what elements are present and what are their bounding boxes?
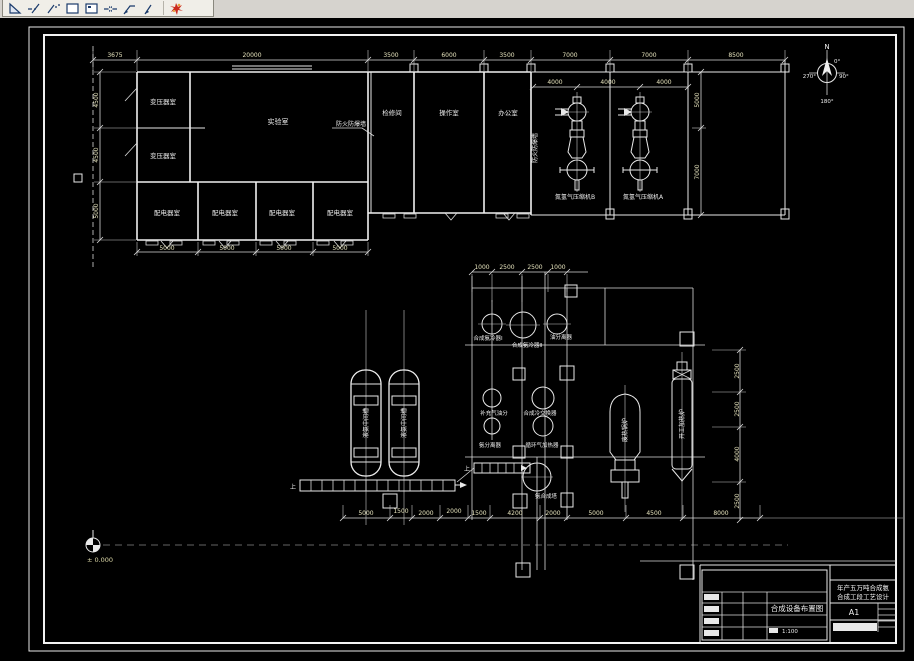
dim-room-1: 5000 xyxy=(159,245,174,252)
dim-left-1: 4500 xyxy=(93,92,100,107)
title-block: 合成设备布置图 1:100 年产五万吨合成氨 合成工段工艺设计 A1 xyxy=(640,561,896,643)
titleblock-scale-label-cell xyxy=(769,628,778,633)
compressor-a-label: 氮氢气压缩机A xyxy=(623,193,664,201)
explode-icon[interactable] xyxy=(167,0,186,16)
dim-eqr-4: 2500 xyxy=(734,493,741,508)
cooler1-label: 合成氨冷器Ⅰ xyxy=(473,334,503,342)
waste-heat-boiler: 废热锅炉 xyxy=(610,385,640,512)
cad-application-window: 变压器室 变压器室 实验室 检修间 操作室 办公室 配电器室 配电器室 配电器室… xyxy=(0,0,914,661)
dim-top-8: 8500 xyxy=(728,52,743,59)
dim-eqbot-6: 4200 xyxy=(507,510,522,517)
compass-270: 270° xyxy=(803,74,816,80)
ray-line-icon[interactable] xyxy=(25,0,44,16)
titleblock-selected-cell-2 xyxy=(704,606,719,612)
dim-top-1: 3675 xyxy=(107,52,122,59)
ammonia-separator-label: 氨分离器 xyxy=(479,441,502,449)
dim-eqtop-4: 1000 xyxy=(550,264,565,271)
sheet-size: A1 xyxy=(849,608,860,617)
room-label-transformer1: 变压器室 xyxy=(150,97,177,106)
room-label-maintenance: 检修间 xyxy=(382,108,402,117)
drawing-canvas[interactable]: 变压器室 变压器室 实验室 检修间 操作室 办公室 配电器室 配电器室 配电器室… xyxy=(0,18,914,661)
stair1-up-label: 上 xyxy=(290,483,296,491)
dim-bayr-2: 7000 xyxy=(694,164,701,179)
startup-heater-label: 开工加热炉 xyxy=(678,409,686,439)
scale-value: 1:100 xyxy=(782,629,798,635)
firewall-wall-label: 防火防爆墙 xyxy=(531,133,539,163)
dim-eqbot-3: 2000 xyxy=(418,510,433,517)
firewall-note: 防火防爆墙 xyxy=(336,120,366,128)
synth-tower-label: 氨合成塔 xyxy=(535,492,558,500)
waste-boiler-label: 废热锅炉 xyxy=(621,418,629,442)
dim-top-2: 20000 xyxy=(242,52,261,59)
quick-leader-icon[interactable] xyxy=(139,0,158,16)
dim-top-3: 3500 xyxy=(383,52,398,59)
room-label-office: 办公室 xyxy=(498,108,518,117)
room-label-dist2: 配电器室 xyxy=(212,208,239,217)
dim-eqtop-3: 2500 xyxy=(527,264,542,271)
compressor-b-drawing xyxy=(555,92,594,192)
cad-drawing: 变压器室 变压器室 实验室 检修间 操作室 办公室 配电器室 配电器室 配电器室… xyxy=(0,18,914,661)
region-icon[interactable] xyxy=(82,0,101,16)
dim-eqtop-2: 2500 xyxy=(499,264,514,271)
dim-eqbot-9: 4500 xyxy=(646,510,661,517)
tank2-label: 液氨中间槽 xyxy=(400,408,408,438)
ammonia-tank-2: 液氨中间槽 xyxy=(389,310,419,525)
titleblock-selected-cell-3 xyxy=(704,618,719,624)
dim-left-3: 5000 xyxy=(93,203,100,218)
makeup-separator-label: 补充气油分 xyxy=(480,409,508,417)
dim-eqr-3: 4000 xyxy=(734,446,741,461)
stair-1: 上 xyxy=(290,480,467,491)
compass-90: 90° xyxy=(839,74,849,80)
dim-room-2: 5000 xyxy=(219,245,234,252)
datum-elevation-text: ± 0.000 xyxy=(87,556,113,564)
dim-eqr-1: 2500 xyxy=(734,363,741,378)
equipment-grid xyxy=(465,272,705,580)
dim-eqr-2: 2500 xyxy=(734,401,741,416)
break-dimension-icon[interactable] xyxy=(101,0,120,16)
datum-marker: ± 0.000 xyxy=(86,530,788,564)
startup-heater-column: 开工加热炉 xyxy=(672,352,692,520)
project-title-line1: 年产五万吨合成氨 xyxy=(837,583,890,592)
dim-eqbot-2: 1500 xyxy=(393,508,408,515)
cooler2-label: 合成氨冷器Ⅱ xyxy=(512,341,543,349)
dim-bay-2: 4000 xyxy=(600,79,615,86)
cad-toolbar xyxy=(0,0,914,19)
equipment-layout: 液氨中间槽 液氨中间槽 合成氨冷器Ⅰ 合成氨冷器Ⅱ 油分离器 xyxy=(290,272,705,580)
construction-line-icon[interactable] xyxy=(44,0,63,16)
grip-point[interactable] xyxy=(74,174,82,182)
dim-bay-1: 4000 xyxy=(547,79,562,86)
ammonia-tank-1: 液氨中间槽 xyxy=(351,310,381,525)
sheet-border xyxy=(29,27,904,651)
project-title-line2: 合成工段工艺设计 xyxy=(837,592,890,601)
room-label-dist3: 配电器室 xyxy=(269,208,296,217)
titleblock-selected-cell-1 xyxy=(704,594,719,600)
drawing-name: 合成设备布置图 xyxy=(771,603,824,613)
room-label-dist1: 配电器室 xyxy=(154,208,181,217)
dim-eqbot-8: 5000 xyxy=(588,510,603,517)
compressor-b-label: 氮氢气压缩机B xyxy=(555,193,595,201)
dim-top-5: 3500 xyxy=(499,52,514,59)
tank1-label: 液氨中间槽 xyxy=(362,408,370,438)
stair-2: 上 xyxy=(457,463,530,482)
dim-eqbot-7: 2000 xyxy=(545,510,560,517)
dim-room-4: 5000 xyxy=(332,245,347,252)
plan-dimensions: 3675 20000 3500 6000 3500 7000 7000 8500… xyxy=(90,50,788,256)
room-label-operation: 操作室 xyxy=(439,108,459,117)
rectangle-icon[interactable] xyxy=(63,0,82,16)
triangle-ruler-icon[interactable] xyxy=(6,0,25,16)
floor-plan: 变压器室 变压器室 实验室 检修间 操作室 办公室 配电器室 配电器室 配电器室… xyxy=(93,46,789,270)
dim-bayr-1: 5000 xyxy=(694,92,701,107)
oil-separator-label: 油分离器 xyxy=(550,333,573,341)
dim-top-4: 6000 xyxy=(441,52,456,59)
leader-icon[interactable] xyxy=(120,0,139,16)
cold-exchanger-label: 合成冷交换器 xyxy=(523,409,557,417)
room-label-transformer2: 变压器室 xyxy=(150,151,177,160)
dim-eqbot-5: 1500 xyxy=(471,510,486,517)
titleblock-selected-cell-4 xyxy=(704,630,719,636)
dim-eqbot-1: 5000 xyxy=(358,510,373,517)
dim-top-6: 7000 xyxy=(562,52,577,59)
dim-bay-3: 4000 xyxy=(656,79,671,86)
dim-left-2: 4500 xyxy=(93,147,100,162)
room-label-dist4: 配电器室 xyxy=(327,208,354,217)
footing-squares xyxy=(383,285,694,579)
dimension-toolbar xyxy=(2,0,214,17)
dim-eqbot-4: 2000 xyxy=(446,508,461,515)
recirc-heater-label: 循环气加热器 xyxy=(525,441,559,449)
compressor-bay: 氮氢气压缩机B 氮氢气压缩机A xyxy=(555,92,664,201)
dim-room-3: 5000 xyxy=(276,245,291,252)
dim-eqtop-1: 1000 xyxy=(474,264,489,271)
compass-n: N xyxy=(824,43,829,51)
dim-top-7: 7000 xyxy=(641,52,656,59)
north-compass: N 0° 270° 90° 180° xyxy=(803,43,849,105)
compressor-a-drawing xyxy=(618,92,657,192)
compass-180: 180° xyxy=(820,99,833,105)
stair2-up-label: 上 xyxy=(464,465,470,473)
compass-0: 0° xyxy=(834,59,840,65)
toolbar-separator xyxy=(158,1,164,15)
titleblock-selected-bar xyxy=(833,623,877,631)
room-label-lab: 实验室 xyxy=(268,117,289,126)
dim-eqbot-10: 8000 xyxy=(713,510,728,517)
